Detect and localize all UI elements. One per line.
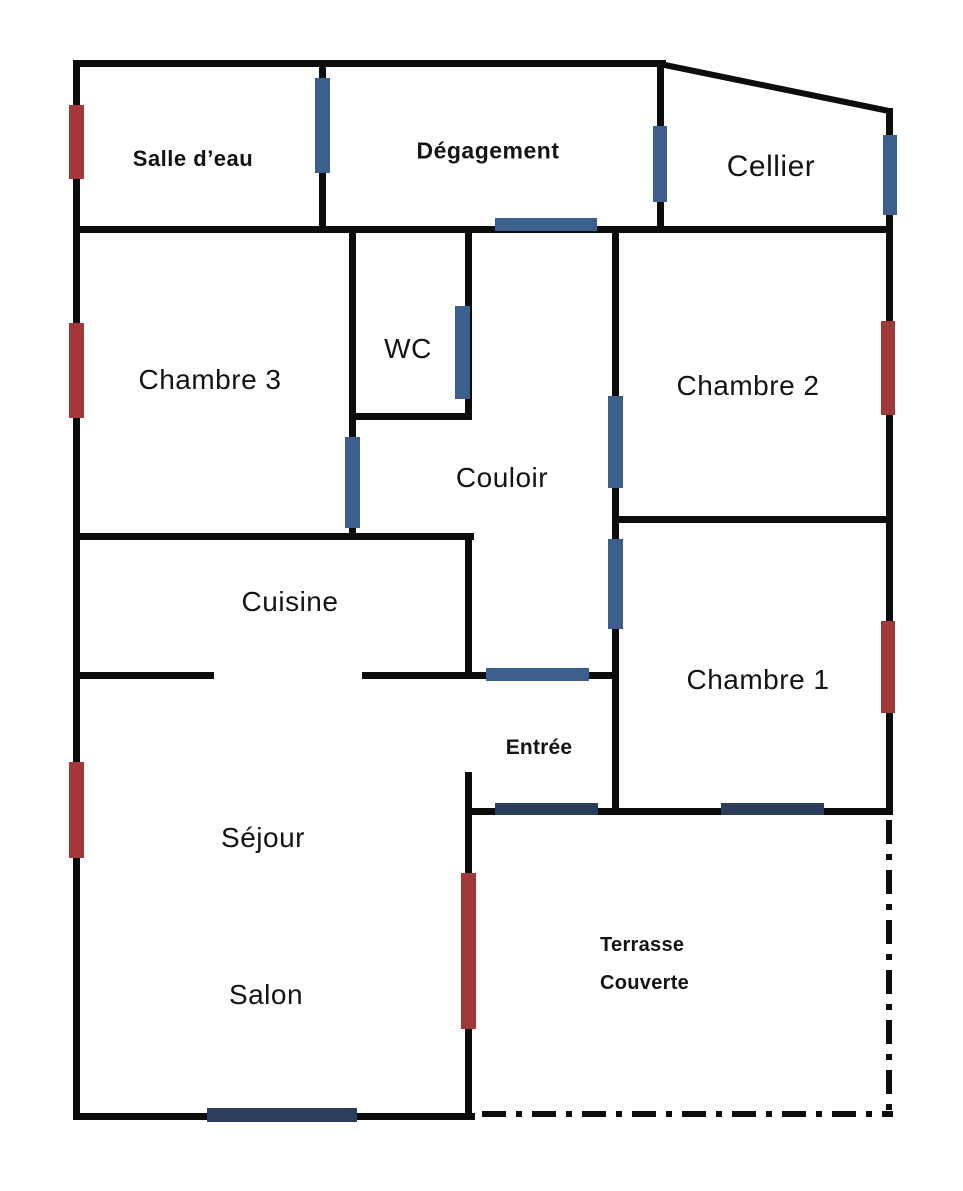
floor-plan: Salle d’eau Dégagement Cellier Chambre 3… [0, 0, 963, 1191]
window-chambre2-marker [881, 321, 895, 415]
door-wc-marker [455, 306, 470, 399]
cuisine-right-wall [465, 533, 472, 679]
door-chambre3-marker [345, 437, 360, 528]
door-chambre1-marker [608, 539, 623, 629]
window-sejour-marker [69, 762, 84, 858]
outer-left-wall [73, 60, 80, 1120]
room-label-chambre-1: Chambre 1 [686, 664, 829, 696]
window-chambre1-terrasse-marker [721, 803, 824, 815]
room-label-chambre-3: Chambre 3 [138, 364, 281, 396]
door-chambre2-marker [608, 396, 623, 488]
terrasse-line-1: Terrasse [600, 926, 689, 964]
room-label-cellier: Cellier [727, 150, 816, 184]
room-label-sejour: Séjour [221, 822, 305, 854]
door-salledeau-degagement-marker [315, 78, 330, 173]
door-couloir-entree-marker [486, 668, 589, 681]
terrasse-line-2: Couverte [600, 964, 689, 1002]
door-degagement-cellier-marker [653, 126, 667, 202]
window-chambre3-marker [69, 323, 84, 418]
room-label-salle-deau: Salle d’eau [133, 146, 253, 172]
room-label-cuisine: Cuisine [242, 586, 339, 618]
room-label-terrasse-couverte: Terrasse Couverte [600, 926, 689, 1002]
room-label-wc: WC [384, 333, 432, 365]
room-label-degagement: Dégagement [416, 138, 559, 165]
window-chambre1-marker [881, 621, 895, 713]
upper-band-bottom-wall [73, 226, 893, 233]
chambre3-bottom-wall [73, 533, 474, 540]
front-door-entree-marker [495, 803, 598, 815]
chambre2-bottom-wall [612, 516, 893, 523]
window-salon-marker [207, 1108, 357, 1122]
couloir-right-wall [612, 226, 619, 815]
cuisine-bottom-wall-left [73, 672, 214, 679]
floor-plan-drawing [0, 0, 963, 1191]
door-salon-terrasse-marker [461, 873, 476, 1029]
room-label-salon: Salon [229, 979, 303, 1011]
outer-top-wall [73, 60, 666, 67]
room-label-couloir: Couloir [456, 462, 548, 494]
window-salle-deau-marker [69, 105, 84, 179]
wc-bottom-wall [349, 413, 471, 420]
window-cellier-marker [883, 135, 897, 215]
roof-diagonal-wall [660, 64, 889, 111]
door-degagement-couloir-marker [495, 218, 597, 231]
room-label-chambre-2: Chambre 2 [676, 370, 819, 402]
room-label-entree: Entrée [506, 736, 573, 760]
